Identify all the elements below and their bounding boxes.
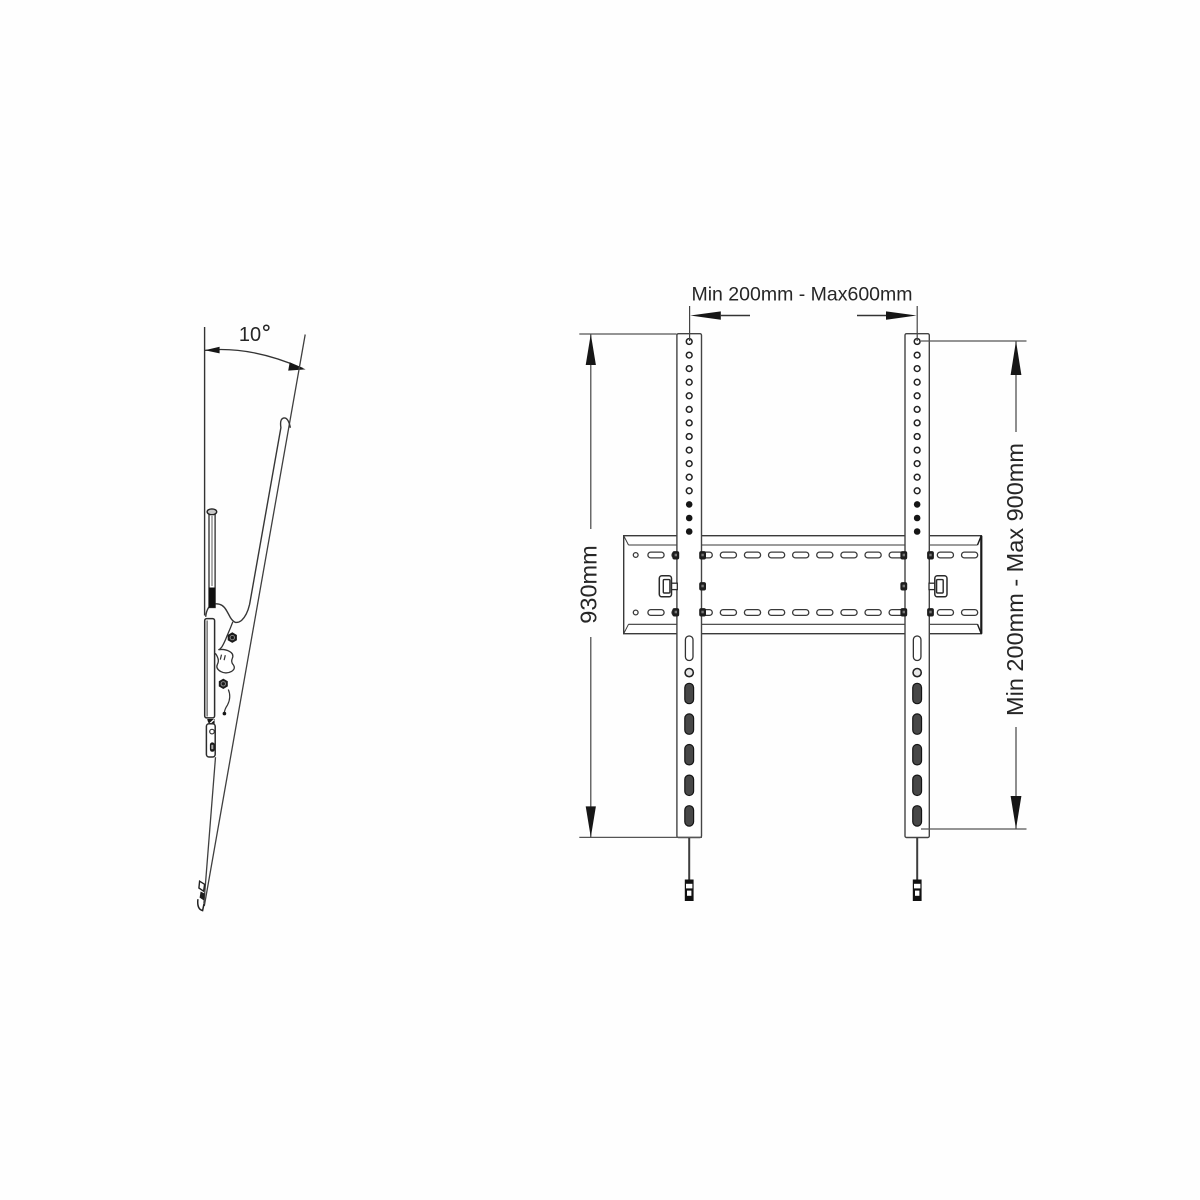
svg-text:930mm: 930mm (576, 545, 602, 623)
svg-text:Min 200mm - Max 900mm: Min 200mm - Max 900mm (1002, 443, 1028, 716)
svg-text:10: 10 (239, 324, 261, 346)
svg-text:Min 200mm - Max600mm: Min 200mm - Max600mm (691, 284, 912, 306)
